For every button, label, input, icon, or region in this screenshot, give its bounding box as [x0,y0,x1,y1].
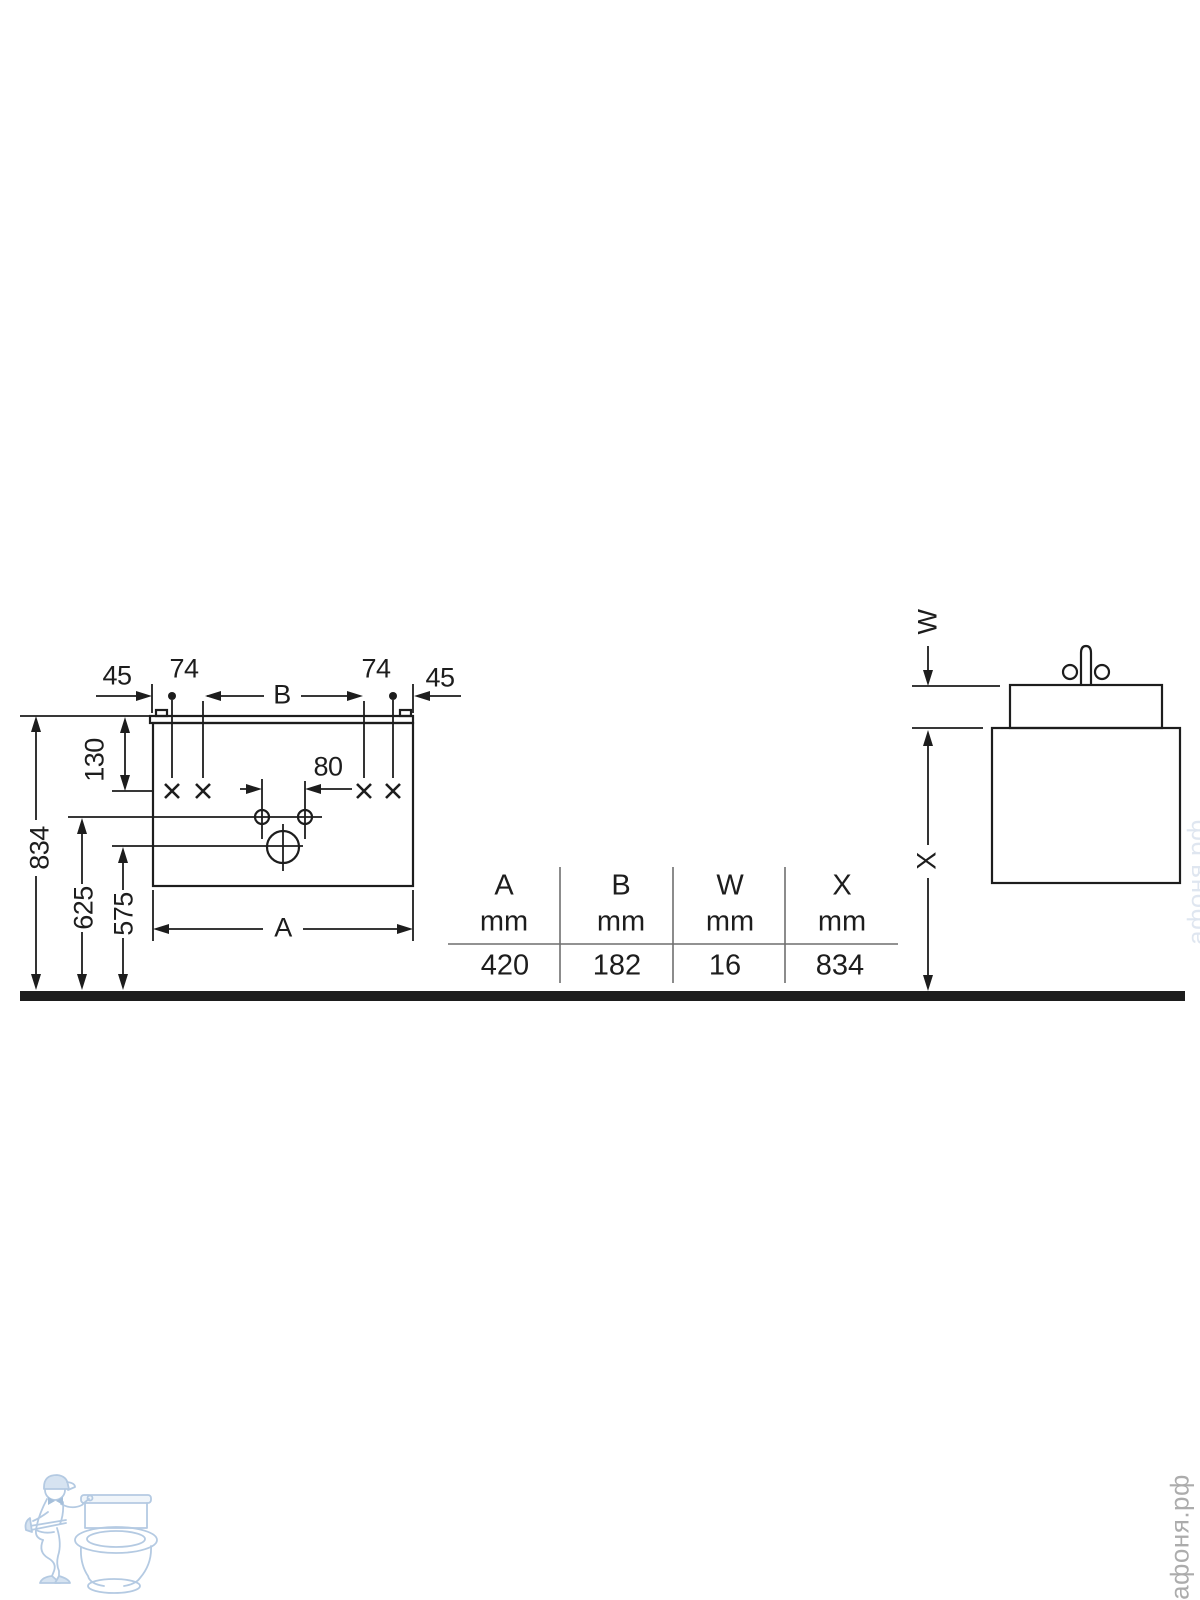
brand-watermark-text: афоня.рф [1165,1474,1196,1600]
front-cabinet-outline [150,710,413,886]
dim-label-74-right: 74 [361,656,390,683]
dim-label-A: A [274,915,292,942]
technical-linework [0,0,1200,1600]
side-cabinet-outline [992,728,1180,883]
dim-label-130: 130 [82,738,109,782]
dim-label-W: W [915,610,942,635]
dim-label-625: 625 [71,886,98,930]
table-unit-A: mm [480,908,528,937]
dim-label-834: 834 [27,826,54,870]
dim-label-45-left: 45 [102,663,131,690]
dim-label-B: B [273,682,291,709]
table-unit-W: mm [706,908,754,937]
mounting-cross-marks [165,784,400,798]
side-washbasin-outline [1010,646,1162,728]
dim-label-74-left: 74 [169,656,198,683]
plumber-watermark-illustration [24,1468,199,1600]
table-header-W: W [716,872,743,901]
drain-hole [267,824,299,871]
table-header-A: A [494,872,513,901]
dim-80 [240,784,352,794]
table-value-X: 834 [816,952,864,981]
table-header-X: X [832,872,851,901]
table-value-W: 16 [709,952,741,981]
table-unit-B: mm [597,908,645,937]
table-value-A: 420 [481,952,529,981]
table-header-B: B [611,872,630,901]
brand-watermark-text-faint: афоня.рф [1182,819,1200,945]
dim-label-X: X [914,852,941,870]
table-unit-X: mm [818,908,866,937]
table-value-B: 182 [593,952,641,981]
floor-line [20,991,1185,1001]
dim-label-575: 575 [111,892,138,936]
dim-W [912,646,1000,686]
dim-130 [112,717,152,791]
dim-label-45-right: 45 [425,665,454,692]
dim-label-80: 80 [313,754,342,781]
plumber-figure [26,1475,158,1593]
installation-drawing-page: 45 74 B 74 45 80 A 130 834 625 575 W X A… [0,0,1200,1600]
